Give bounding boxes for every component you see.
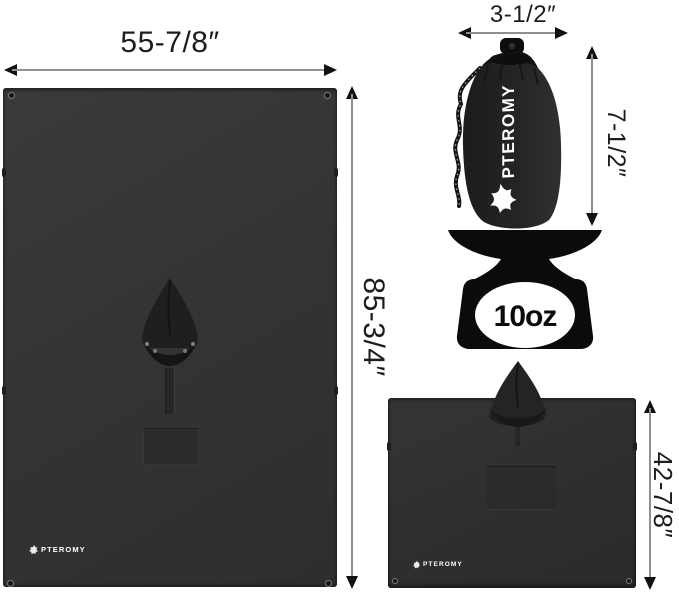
edge-snap: [2, 386, 6, 395]
poncho-hood: [474, 358, 562, 430]
grommet: [392, 578, 398, 584]
grommet: [8, 92, 15, 99]
hood: [128, 274, 212, 378]
logo-star-icon: [412, 560, 421, 569]
product-dimension-diagram: 55-7/8″ PTEROMY: [0, 0, 679, 596]
zipper: [165, 368, 175, 414]
arrow-down-icon: [644, 577, 656, 590]
grommet: [7, 580, 14, 587]
weight-scale: 10oz: [445, 224, 605, 350]
edge-snap: [633, 442, 637, 451]
brand-logo: PTEROMY: [412, 560, 463, 569]
weight-badge: 10oz: [470, 300, 580, 334]
poncho-height-label: 42-7/8″: [647, 434, 679, 556]
grommet: [325, 580, 332, 587]
poncho-pocket: [486, 466, 556, 510]
blanket-width-label: 55-7/8″: [90, 26, 250, 60]
logo-star-icon: [28, 544, 39, 555]
blanket-flat: PTEROMY: [3, 88, 337, 587]
stuff-sack: PTEROMY: [448, 36, 572, 236]
chest-pocket: [143, 428, 199, 465]
grommet: [626, 578, 632, 584]
sack-width-label: 3-1/2″: [463, 1, 583, 29]
brand-logo-text: PTEROMY: [41, 545, 86, 554]
blanket-width-dimension-line: [4, 64, 337, 76]
brand-logo: PTEROMY: [28, 544, 86, 555]
sack-height-dimension-line: [586, 46, 598, 226]
grommet: [324, 92, 331, 99]
sack-brand-text: PTEROMY: [499, 70, 521, 191]
blanket-height-label: 85-3/4″: [355, 262, 391, 392]
edge-snap: [2, 168, 6, 177]
arrow-down-icon: [346, 576, 358, 589]
sack-height-label: 7-1/2″: [601, 87, 631, 199]
arrow-right-icon: [324, 64, 337, 76]
brand-logo-text: PTEROMY: [423, 561, 463, 568]
edge-snap: [334, 386, 338, 395]
edge-snap: [334, 168, 338, 177]
edge-snap: [387, 442, 391, 451]
